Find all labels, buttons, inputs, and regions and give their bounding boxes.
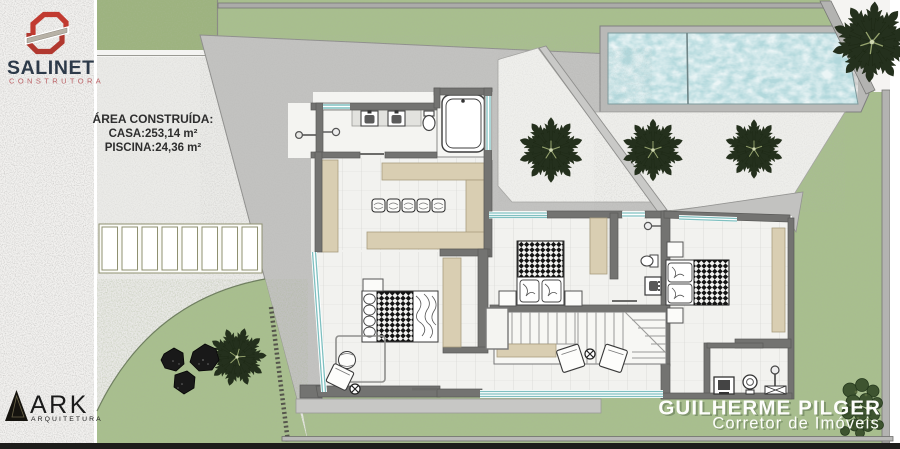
svg-text:ARK: ARK [30,391,89,419]
svg-text:PISCINA:24,36 m²: PISCINA:24,36 m² [105,142,202,154]
svg-text:ÁREA CONSTRUÍDA:: ÁREA CONSTRUÍDA: [93,111,214,126]
svg-text:CASA:253,14 m²: CASA:253,14 m² [109,128,198,140]
svg-text:ARQUITETURA: ARQUITETURA [31,416,103,423]
svg-text:Corretor de Imóveis: Corretor de Imóveis [712,415,880,433]
svg-text:CONSTRUTORA: CONSTRUTORA [9,77,104,86]
